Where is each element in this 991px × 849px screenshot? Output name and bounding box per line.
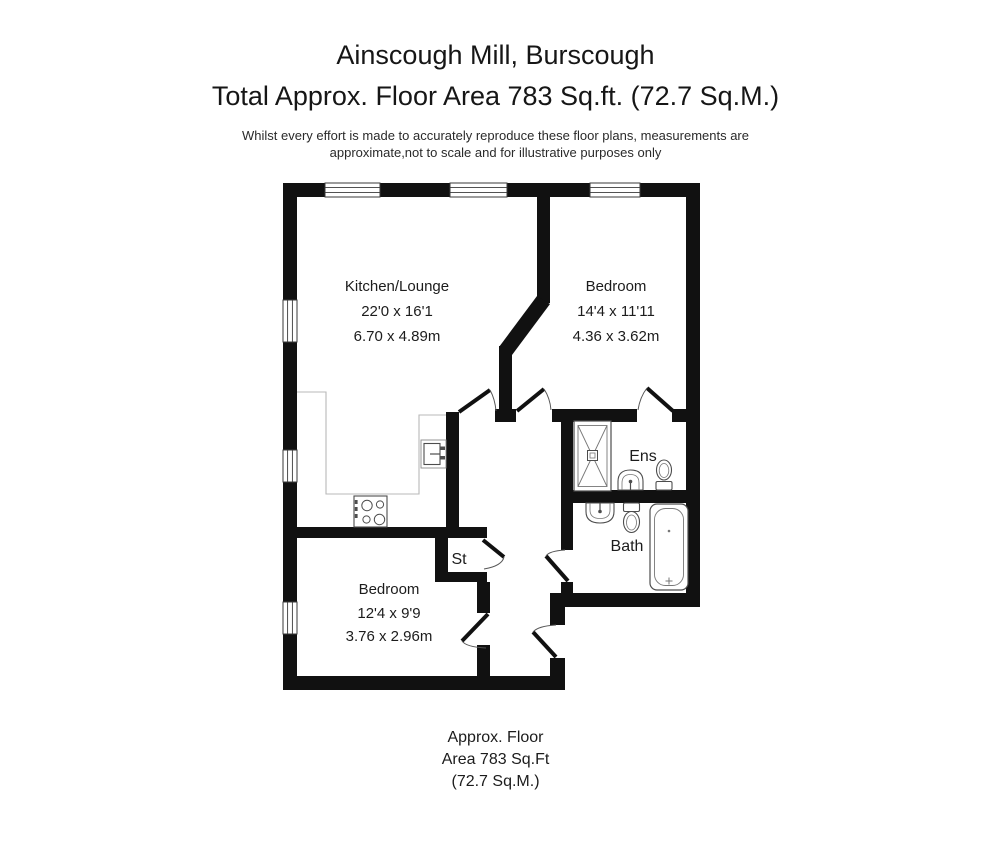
floorplan-page: Ainscough Mill, Burscough Total Approx. … — [0, 0, 991, 849]
floor-plan: Kitchen/Lounge 22'0 x 16'1 6.70 x 4.89m … — [0, 0, 991, 849]
bedroom2-label: Bedroom — [359, 581, 420, 598]
kitchen-sink-icon — [421, 440, 446, 468]
bath-toilet-icon — [624, 503, 640, 533]
kitchen-lounge-dims-imperial: 22'0 x 16'1 — [361, 303, 433, 320]
bedroom2-dims-metric: 3.76 x 2.96m — [346, 628, 433, 645]
ensuite-basin-icon — [618, 470, 643, 490]
storage-label: St — [451, 551, 467, 568]
ensuite-label: Ens — [629, 448, 657, 465]
bedroom1-dims-metric: 4.36 x 3.62m — [573, 328, 660, 345]
bedroom1-label: Bedroom — [586, 278, 647, 295]
kitchen-door — [459, 390, 496, 412]
bedroom2-dims-imperial: 12'4 x 9'9 — [357, 605, 420, 622]
storage-door — [483, 540, 504, 569]
bath-door — [546, 550, 568, 581]
kitchen-lounge-label: Kitchen/Lounge — [345, 278, 449, 295]
ensuite-toilet-icon — [656, 460, 672, 490]
window-left-1 — [283, 300, 297, 342]
hob-icon — [354, 496, 387, 527]
bathtub-icon — [650, 504, 688, 590]
window-left-2 — [283, 450, 297, 482]
kitchen-lounge-dims-metric: 6.70 x 4.89m — [354, 328, 441, 345]
bath-label: Bath — [611, 538, 644, 555]
footer-area: Area 783 Sq.Ft — [0, 751, 991, 769]
walls — [283, 183, 700, 690]
bedroom1-dims-imperial: 14'4 x 11'11 — [577, 303, 655, 320]
window-left-3 — [283, 602, 297, 634]
bedroom1-door — [517, 389, 551, 411]
ensuite-door — [638, 388, 673, 411]
window-top-2 — [450, 183, 507, 197]
bath-basin-icon — [586, 503, 614, 523]
shower-icon — [574, 421, 611, 491]
footer-approx-floor: Approx. Floor — [0, 729, 991, 747]
bedroom2-door — [462, 614, 488, 648]
footer-area-metric: (72.7 Sq.M.) — [0, 773, 991, 791]
entry-door — [533, 625, 556, 657]
room-labels: Kitchen/Lounge 22'0 x 16'1 6.70 x 4.89m … — [345, 278, 659, 645]
window-top-3 — [590, 183, 640, 197]
window-top-1 — [325, 183, 380, 197]
